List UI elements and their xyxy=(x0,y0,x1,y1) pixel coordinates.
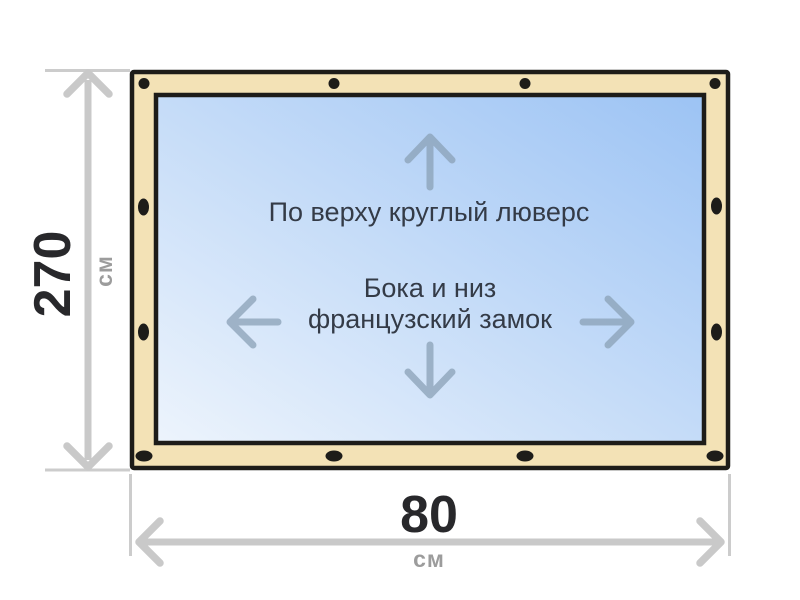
grommet-dot xyxy=(138,199,149,216)
grommet-dot xyxy=(711,198,722,215)
grommet-dot xyxy=(707,451,724,462)
annotation-sides-line2: французский замок xyxy=(308,304,552,334)
curtain-diagram: 270 см 80 см xyxy=(0,0,800,600)
height-dimension: 270 см xyxy=(24,71,130,471)
grommet-dot xyxy=(710,78,721,89)
height-value: 270 xyxy=(24,231,82,318)
grommet-dot xyxy=(326,451,343,462)
width-unit: см xyxy=(413,546,445,572)
grommet-dot xyxy=(520,78,531,89)
grommet-dot xyxy=(517,451,534,462)
grommet-dot xyxy=(136,451,153,462)
grommet-dot xyxy=(711,324,722,341)
grommet-dot xyxy=(329,78,340,89)
grommet-dot xyxy=(139,78,150,89)
height-unit: см xyxy=(91,255,117,287)
annotation-sides-line1: Бока и низ xyxy=(364,273,497,303)
width-dimension: 80 см xyxy=(131,474,730,572)
tent-frame xyxy=(132,72,728,468)
grommet-dot xyxy=(138,324,149,341)
annotation-top-edge: По верху круглый люверс xyxy=(269,197,590,227)
width-value: 80 xyxy=(400,486,458,544)
diagram-stage: 270 см 80 см xyxy=(0,0,800,600)
